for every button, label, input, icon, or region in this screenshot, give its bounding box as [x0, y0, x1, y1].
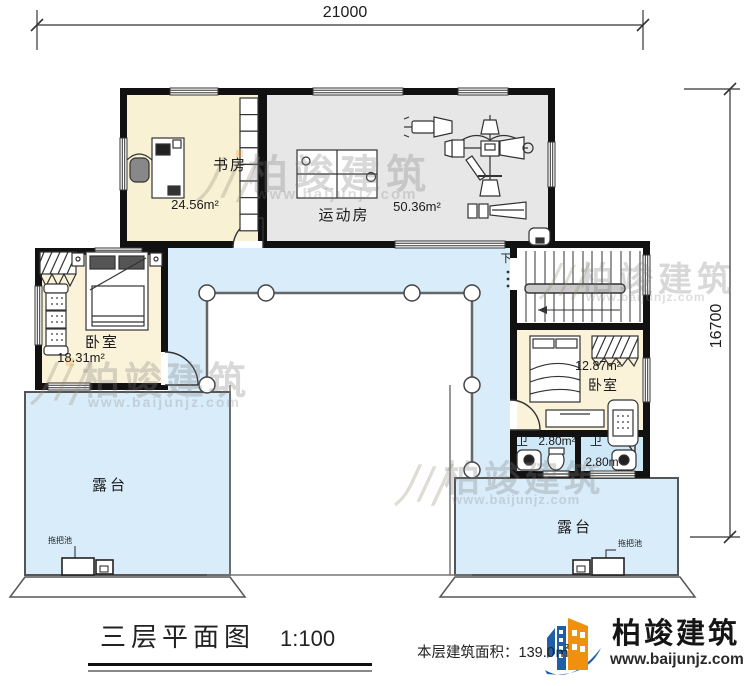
study-area: 24.56m² — [160, 198, 230, 211]
armchair-right — [608, 400, 638, 446]
bedroom-left-name: 卧室 — [77, 335, 127, 350]
bath-right-area: 2.80m — [580, 456, 624, 468]
bedroom-right-area: 12.87m² — [568, 360, 628, 373]
gym-name: 运动房 — [308, 208, 380, 223]
watermark-url: www.baijunjz.com — [452, 492, 580, 507]
stair-direction-label: 下 — [499, 254, 513, 265]
nightstand — [72, 253, 84, 266]
floorplan-page: 川 柏竣建筑 www.baijunjz.com 川 柏竣建筑 www.baiju… — [0, 0, 750, 686]
dimension-top-label: 21000 — [300, 5, 390, 21]
mop-sink-label-right: 拖把池 — [612, 540, 648, 548]
bed-left — [86, 252, 148, 330]
watermark-url: www.baijunjz.com — [586, 290, 706, 304]
dressing-table — [546, 410, 604, 427]
bedroom-left-area: 18.31m² — [50, 351, 112, 364]
desk-chair — [130, 158, 149, 182]
title-rule-top — [88, 663, 372, 666]
floor-area-note: 本层建筑面积：139.0㎡ — [417, 646, 569, 661]
bedroom-right-name: 卧室 — [580, 378, 626, 392]
study-name: 书房 — [200, 158, 260, 173]
watermark-accent — [236, 150, 243, 157]
title-rule-bottom — [88, 670, 372, 672]
walkway-top — [168, 248, 510, 293]
brand-logo-text: 柏竣建筑 — [612, 620, 740, 649]
dimension-right-label: 16700 — [709, 296, 725, 356]
bath-right-name: 卫 — [588, 435, 604, 447]
plan-title: 三层平面图 — [100, 624, 255, 650]
bath-left-name: 卫 — [514, 435, 530, 447]
mop-sink-label-left: 拖把池 — [42, 537, 78, 545]
bath-left-area: 2.80m² — [532, 435, 582, 447]
terrace-left-parapet — [10, 577, 245, 597]
watermark-url: www.baijunjz.com — [88, 394, 241, 410]
gym-area: 50.36m² — [382, 200, 452, 213]
terrace-right-parapet — [440, 577, 695, 597]
plan-scale: 1:100 — [280, 628, 335, 650]
brand-logo-url: www.baijunjz.com — [610, 652, 744, 668]
corner-toilet-icon — [529, 228, 550, 245]
nightstand — [150, 253, 162, 266]
terrace-right-name: 露台 — [545, 520, 605, 535]
terrace-left-name: 露台 — [80, 478, 140, 493]
